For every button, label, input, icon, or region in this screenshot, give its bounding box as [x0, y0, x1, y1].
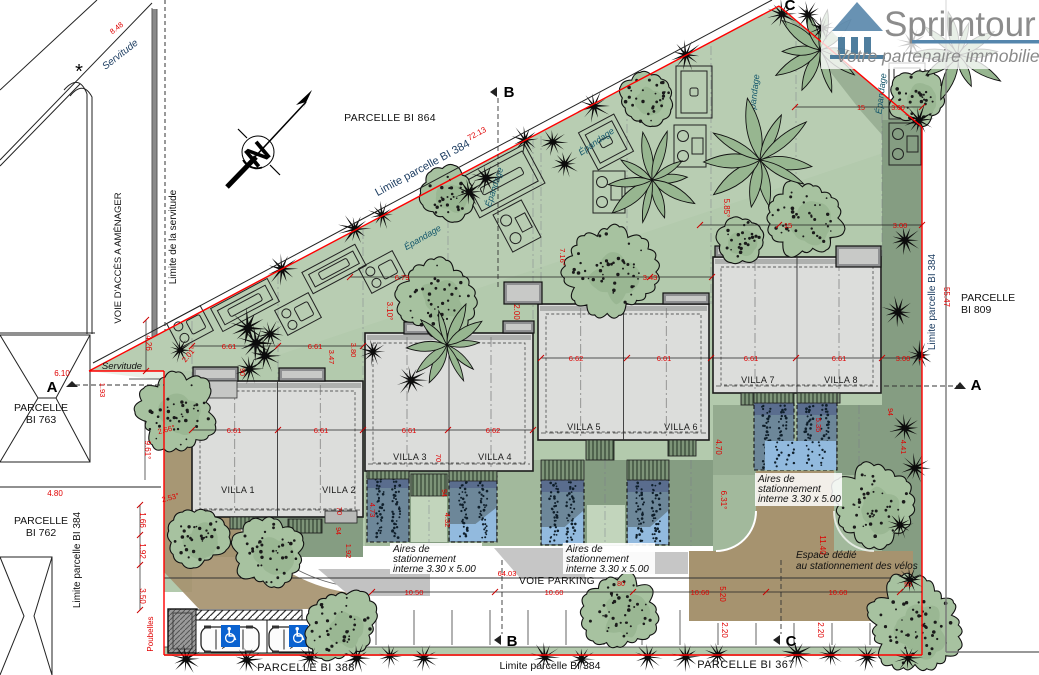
svg-text:55.47: 55.47	[942, 287, 951, 308]
svg-text:BI 809: BI 809	[961, 304, 992, 316]
svg-text:VILLA 6: VILLA 6	[664, 422, 698, 432]
svg-text:PARCELLE: PARCELLE	[961, 292, 1015, 304]
svg-text:A: A	[47, 379, 58, 396]
svg-text:2.00: 2.00	[512, 304, 521, 320]
svg-text:4.73: 4.73	[368, 503, 377, 518]
svg-text:6.62: 6.62	[569, 354, 584, 363]
svg-text:4.26: 4.26	[144, 335, 153, 351]
svg-text:15: 15	[857, 105, 865, 112]
svg-text:9.61°: 9.61°	[143, 441, 152, 460]
svg-text:VILLA 1: VILLA 1	[221, 485, 255, 495]
svg-text:B: B	[504, 84, 515, 101]
svg-text:1.92: 1.92	[344, 544, 353, 559]
svg-text:6.61: 6.61	[744, 354, 759, 363]
svg-text:6.61: 6.61	[314, 426, 329, 435]
svg-text:10.60: 10.60	[545, 588, 564, 597]
svg-text:4.32: 4.32	[443, 513, 452, 528]
svg-text:70: 70	[335, 507, 344, 515]
svg-text:5.35: 5.35	[814, 418, 823, 433]
svg-text:3.80: 3.80	[349, 343, 358, 358]
svg-text:15: 15	[784, 221, 792, 230]
svg-text:6.61: 6.61	[222, 342, 237, 351]
svg-text:10.60: 10.60	[829, 588, 848, 597]
svg-text:10.50: 10.50	[405, 588, 424, 597]
svg-text:50: 50	[904, 582, 912, 589]
svg-text:5.20: 5.20	[718, 586, 727, 602]
svg-text:6.61: 6.61	[402, 426, 417, 435]
svg-text:6.61: 6.61	[832, 354, 847, 363]
svg-text:94: 94	[334, 527, 341, 535]
svg-text:3.00: 3.00	[896, 354, 911, 363]
svg-text:3.00: 3.00	[891, 105, 905, 112]
svg-text:A: A	[971, 377, 982, 394]
svg-text:PARCELLE BI 864: PARCELLE BI 864	[344, 112, 436, 124]
svg-text:C: C	[786, 633, 797, 650]
svg-text:VILLA 3: VILLA 3	[393, 452, 427, 462]
svg-text:94: 94	[886, 408, 893, 416]
svg-text:3.50: 3.50	[138, 588, 147, 604]
svg-text:3.47: 3.47	[327, 350, 336, 365]
svg-text:Servitude: Servitude	[102, 361, 142, 372]
svg-text:Limite parcelle BI 384: Limite parcelle BI 384	[500, 660, 601, 672]
svg-text:6.31°: 6.31°	[719, 491, 728, 510]
svg-text:Limite de la servitude: Limite de la servitude	[168, 189, 179, 284]
svg-text:64.03: 64.03	[498, 569, 517, 578]
svg-text:Sprimtour: Sprimtour	[884, 5, 1036, 44]
svg-text:2.20: 2.20	[816, 622, 825, 638]
svg-text:VOIE PARKING: VOIE PARKING	[519, 576, 595, 587]
svg-text:VILLA 4: VILLA 4	[478, 452, 512, 462]
svg-text:6.79: 6.79	[395, 273, 410, 282]
svg-text:Limite parcelle BI 384: Limite parcelle BI 384	[72, 511, 83, 608]
svg-text:VILLA 7: VILLA 7	[741, 375, 775, 385]
svg-text:C: C	[785, 0, 796, 14]
svg-text:B: B	[507, 633, 518, 650]
svg-text:1.66: 1.66	[138, 512, 147, 528]
svg-text:VILLA 5: VILLA 5	[567, 422, 601, 432]
svg-text:11.40: 11.40	[818, 535, 827, 555]
svg-text:PARCELLE BI 367: PARCELLE BI 367	[697, 659, 795, 671]
svg-text:Votre partenaire immobilier: Votre partenaire immobilier	[836, 46, 1039, 66]
svg-text:3.00: 3.00	[893, 221, 908, 230]
svg-text:PARCELLE: PARCELLE	[14, 515, 68, 527]
svg-text:6.62: 6.62	[486, 426, 501, 435]
svg-text:4.70: 4.70	[714, 439, 723, 455]
svg-text:90: 90	[238, 368, 245, 376]
svg-text:PARCELLE: PARCELLE	[14, 402, 68, 414]
svg-text:94: 94	[440, 489, 447, 497]
svg-text:70: 70	[434, 454, 443, 462]
svg-text:VILLA 2: VILLA 2	[322, 485, 356, 495]
svg-text:PARCELLE BI 388: PARCELLE BI 388	[257, 662, 355, 674]
svg-text:au stationnement des vélos: au stationnement des vélos	[796, 561, 918, 572]
svg-text:Limite parcelle BI 384: Limite parcelle BI 384	[927, 253, 938, 350]
svg-text:80: 80	[617, 581, 625, 588]
svg-text:6.61: 6.61	[227, 426, 242, 435]
svg-text:interne 3.30 x 5.00: interne 3.30 x 5.00	[566, 564, 649, 575]
svg-text:4.41: 4.41	[899, 440, 908, 455]
svg-text:BI 763: BI 763	[26, 414, 57, 426]
svg-text:1.93: 1.93	[98, 383, 107, 398]
svg-text:2.20: 2.20	[720, 622, 729, 638]
svg-text:3.43: 3.43	[643, 273, 658, 282]
svg-text:VILLA 8: VILLA 8	[824, 375, 858, 385]
svg-text:interne 3.30 x 5.00: interne 3.30 x 5.00	[393, 564, 476, 575]
svg-text:Poubelles: Poubelles	[146, 616, 155, 651]
svg-text:VOIE D'ACCÈS A AMÉNAGER: VOIE D'ACCÈS A AMÉNAGER	[113, 192, 124, 323]
svg-text:*: *	[75, 61, 83, 83]
svg-text:3.10°: 3.10°	[385, 302, 394, 321]
svg-text:6.61: 6.61	[657, 354, 672, 363]
svg-text:1.92: 1.92	[138, 543, 147, 559]
svg-text:7.16°: 7.16°	[558, 248, 567, 266]
svg-text:interne 3.30 x 5.00: interne 3.30 x 5.00	[758, 494, 841, 505]
svg-text:5.85°: 5.85°	[722, 199, 731, 218]
svg-text:6.10: 6.10	[54, 369, 70, 378]
svg-text:BI 762: BI 762	[26, 527, 57, 539]
svg-text:10.60: 10.60	[691, 588, 710, 597]
svg-text:4.80: 4.80	[47, 489, 63, 498]
svg-text:6.61: 6.61	[308, 342, 323, 351]
